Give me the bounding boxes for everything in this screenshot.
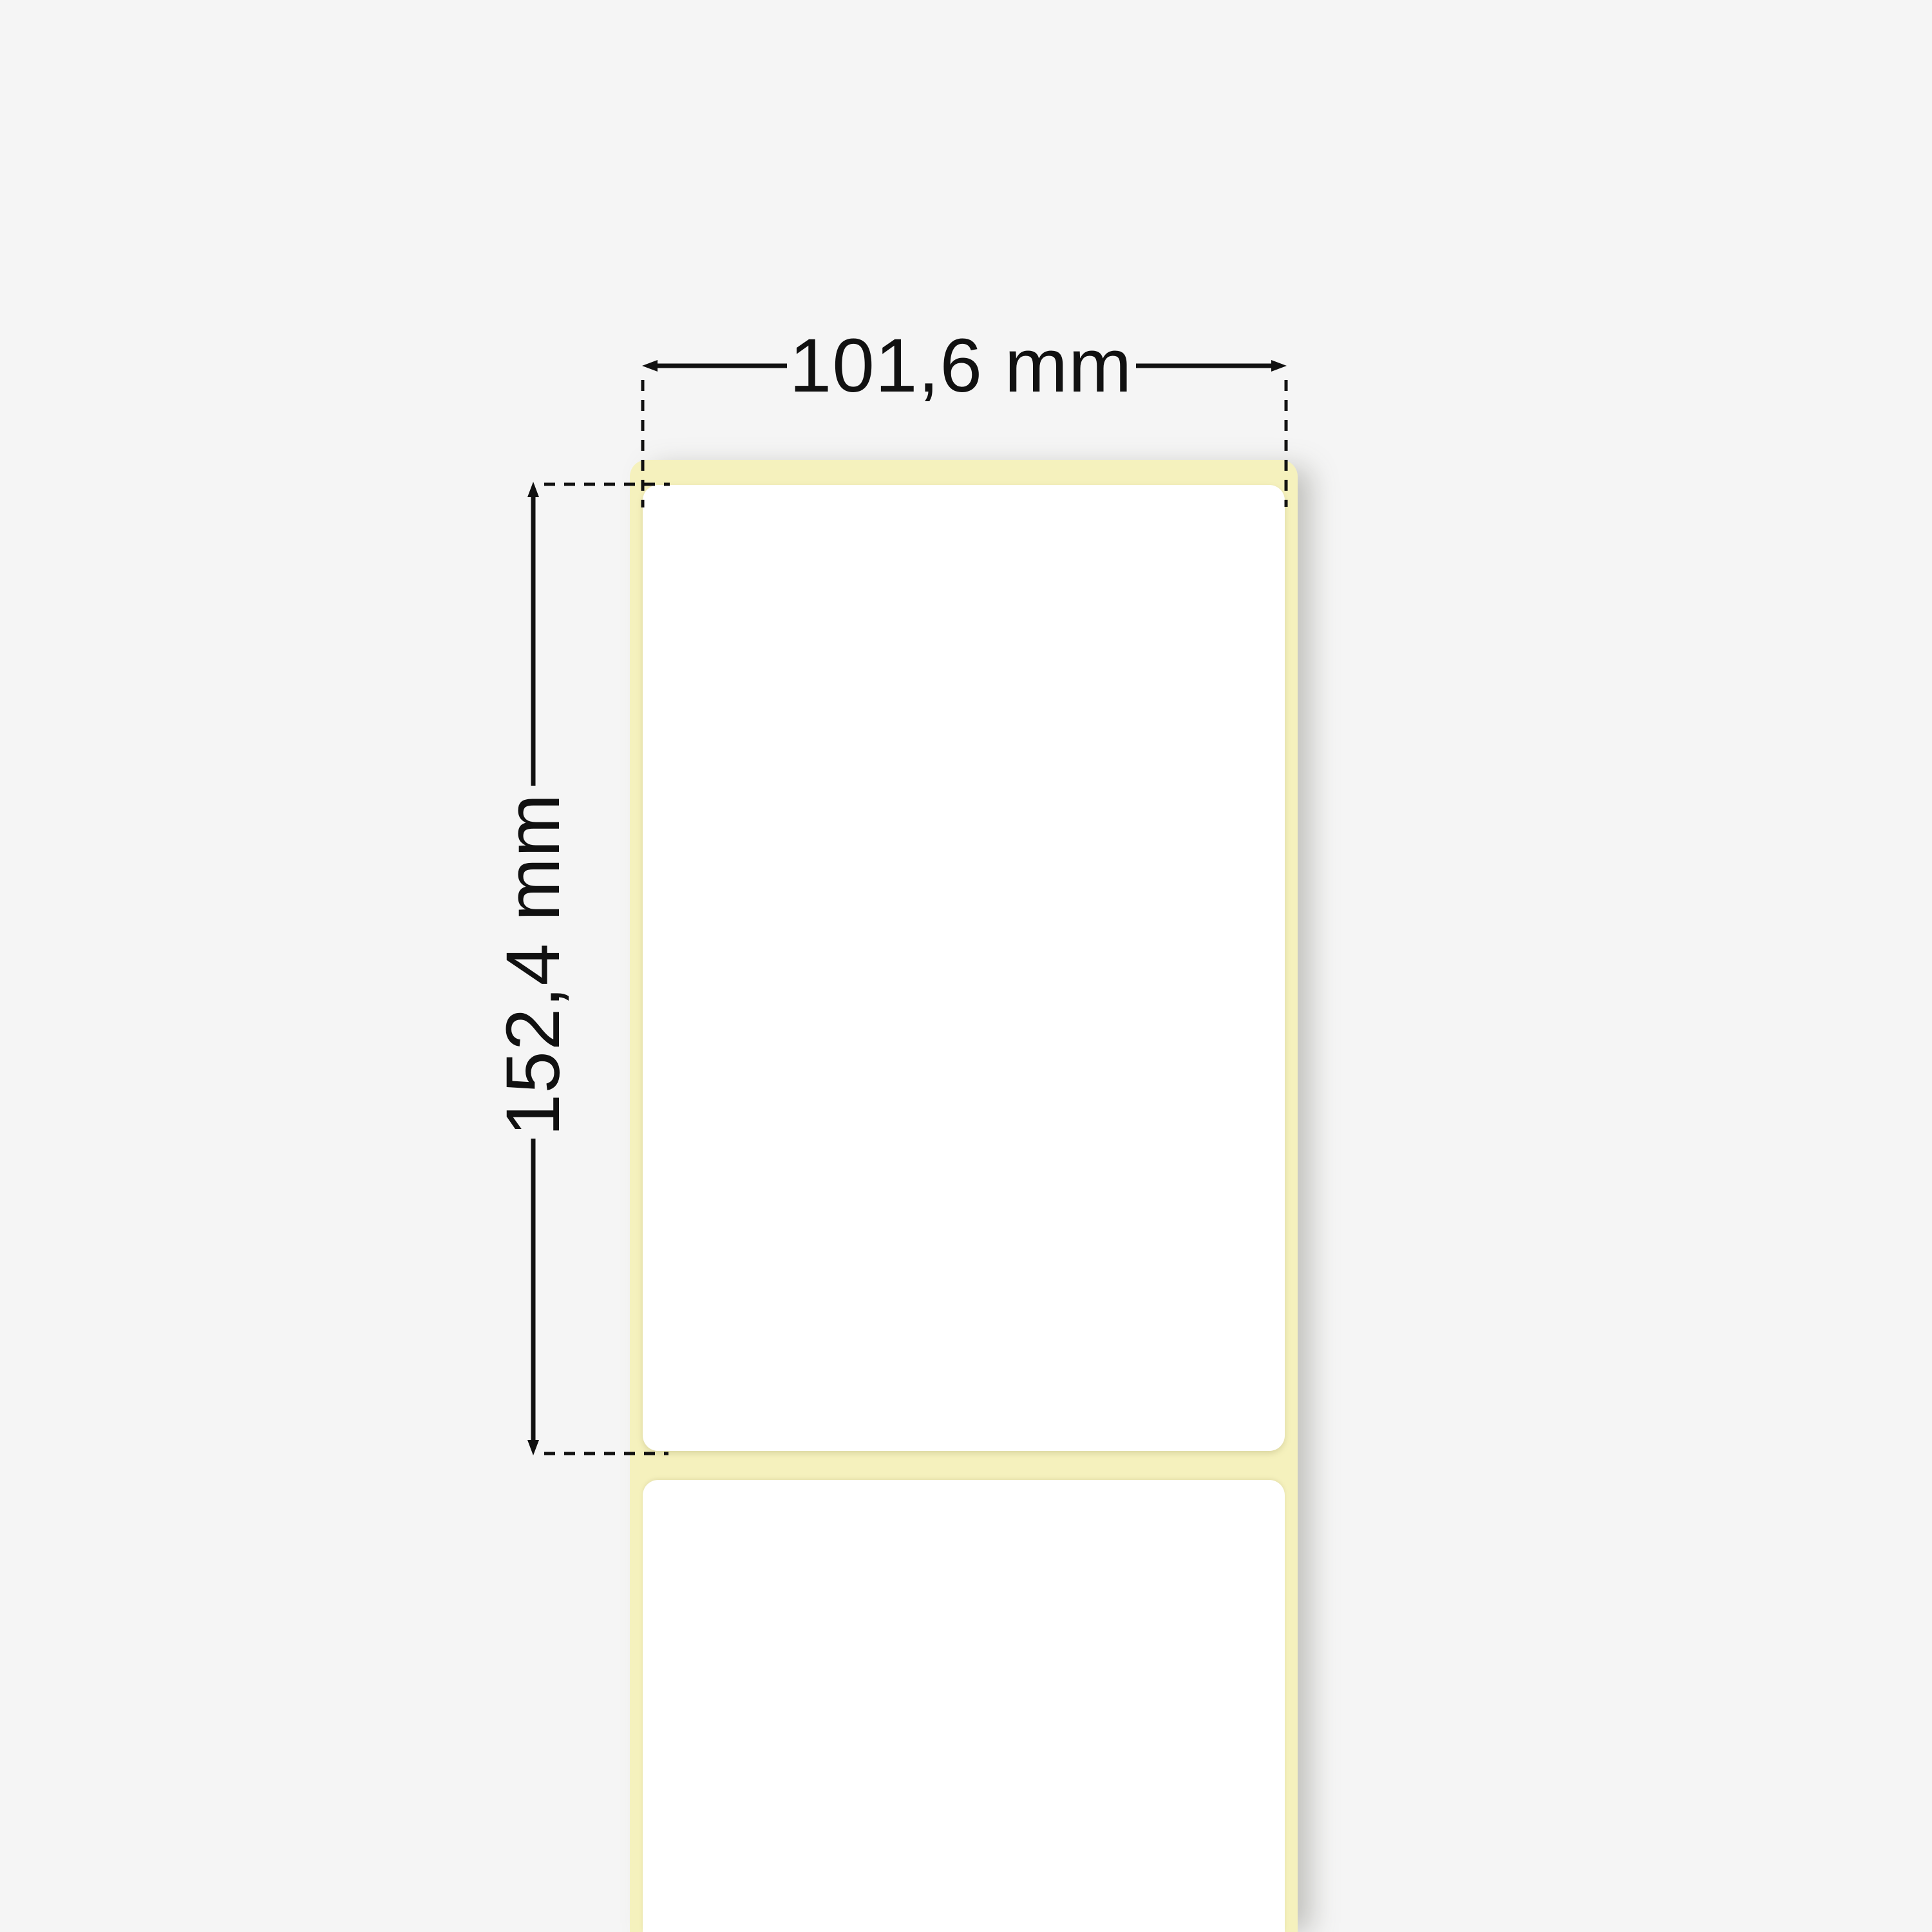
label-2 (643, 1480, 1285, 1932)
arrowhead-left-icon (642, 360, 658, 372)
width-dimension-label: 101,6 mm (790, 322, 1133, 410)
height-dimension-label: 152,4 mm (489, 793, 577, 1137)
arrowhead-down-icon (527, 1440, 539, 1455)
diagram-canvas: 101,6 mm 152,4 mm (0, 0, 1932, 1932)
label-1 (643, 485, 1285, 1451)
arrowhead-up-icon (527, 482, 539, 497)
arrowhead-right-icon (1271, 360, 1287, 372)
